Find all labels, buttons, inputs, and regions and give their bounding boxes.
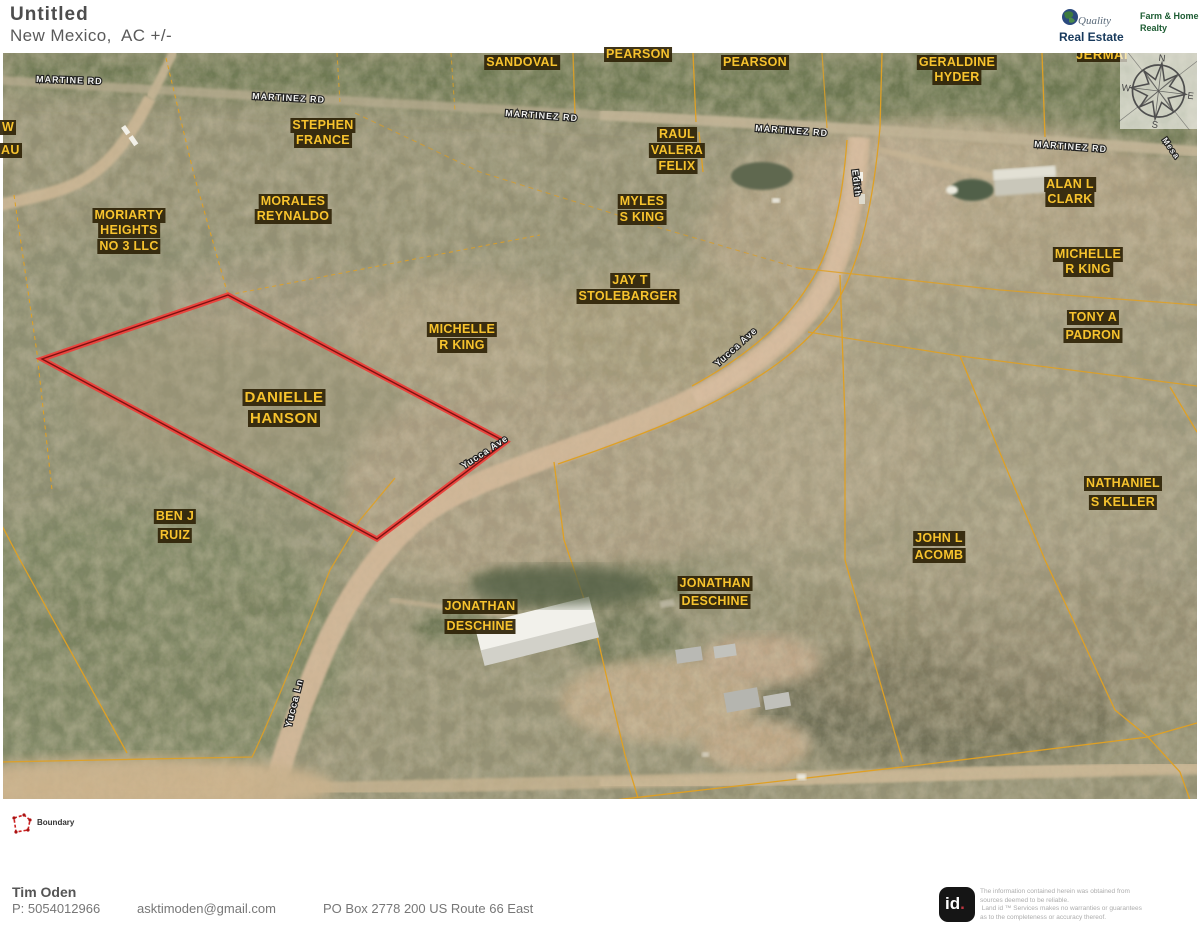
svg-text:E: E [1187,91,1195,103]
svg-text:W: W [1121,83,1131,95]
svg-text:S: S [1151,119,1159,131]
